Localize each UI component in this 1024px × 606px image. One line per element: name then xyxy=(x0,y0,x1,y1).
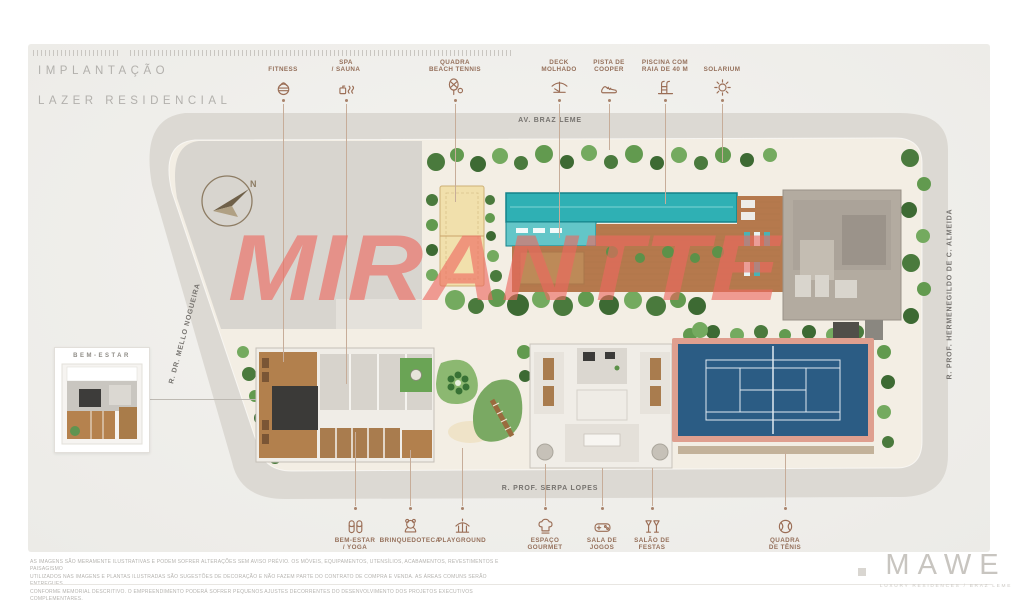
logo-tagline: LUXURY RESIDENCES / BRAZ LEME xyxy=(878,584,1014,589)
leader-dot xyxy=(601,507,604,510)
amenity-salao-de-festas: SALÃO DEFESTAS xyxy=(602,512,702,551)
leader-dot xyxy=(354,507,357,510)
leader-dot xyxy=(664,99,667,102)
leader-dot xyxy=(721,99,724,102)
leader-line xyxy=(652,468,653,506)
leader-line xyxy=(355,432,356,506)
leader-dot xyxy=(282,99,285,102)
inset-title: BEM-ESTAR xyxy=(55,353,149,359)
leader-dot xyxy=(784,507,787,510)
developer-logo: MAWE LUXURY RESIDENCES / BRAZ LEME xyxy=(878,549,1014,589)
leader-line xyxy=(609,104,610,150)
amenity-label: SOLARIUM xyxy=(672,66,772,73)
leader-line xyxy=(455,104,456,202)
watermark: MIRANTTE xyxy=(228,216,781,320)
leader-line xyxy=(785,452,786,506)
amenity-quadra-beach-tennis: QUADRABEACH TENNIS xyxy=(405,54,505,98)
sun-icon xyxy=(672,76,772,98)
tennis-ball-icon xyxy=(735,515,835,537)
site-plan-page: IMPLANTAÇÃO LAZER RESIDENCIAL N xyxy=(0,0,1024,606)
disclaimer-line-1: AS IMAGENS SÃO MERAMENTE ILUSTRATIVAS E … xyxy=(30,559,510,574)
leader-dot xyxy=(558,99,561,102)
inset-bem-estar: BEM-ESTAR xyxy=(54,347,150,453)
gravel-strip xyxy=(678,446,874,454)
leader-dot xyxy=(544,507,547,510)
racket-icon xyxy=(405,76,505,98)
leader-line xyxy=(410,450,411,506)
amenity-label: SPA/ SAUNA xyxy=(296,59,396,73)
sauna-icon xyxy=(296,76,396,98)
logo-name: MAWE xyxy=(878,549,1014,582)
wellness-building xyxy=(256,348,434,462)
disclaimer-line-3: CONFORME MEMORIAL DESCRITIVO. O EMPREEND… xyxy=(30,589,510,604)
leader-dot xyxy=(454,99,457,102)
sauna-room xyxy=(272,386,318,430)
amenity-quadra-de-tenis: QUADRADE TÊNIS xyxy=(735,512,835,551)
leader-line xyxy=(665,104,666,204)
amenity-label: QUADRADE TÊNIS xyxy=(735,537,835,551)
toast-glasses-icon xyxy=(602,515,702,537)
amenity-spa-sauna: SPA/ SAUNA xyxy=(296,54,396,98)
street-label-hermenegildo: R. PROF. HERMENEGILDO DE C. ALMEIDA xyxy=(947,220,954,380)
footer-divider xyxy=(30,584,992,585)
inset-floorplan xyxy=(61,363,143,445)
inset-connector-line xyxy=(148,399,256,400)
street-label-serpa-lopes: R. PROF. SERPA LOPES xyxy=(460,485,640,492)
amenity-label: SALÃO DEFESTAS xyxy=(602,537,702,551)
svg-text:N: N xyxy=(250,179,257,189)
tennis-court xyxy=(672,338,874,454)
leader-dot xyxy=(461,507,464,510)
disclaimer-line-2: UTILIZADOS NAS IMAGENS E PLANTAS ILUSTRA… xyxy=(30,574,510,589)
leader-dot xyxy=(608,99,611,102)
logo-square xyxy=(858,568,866,576)
amenity-solarium: SOLARIUM xyxy=(672,54,772,98)
leader-line xyxy=(602,468,603,506)
leader-line xyxy=(545,464,546,506)
leader-line xyxy=(722,104,723,162)
leader-line xyxy=(462,448,463,506)
street-label-av-braz-leme: AV. BRAZ LEME xyxy=(470,117,630,124)
gourmet-building xyxy=(530,344,672,468)
amenity-label: QUADRABEACH TENNIS xyxy=(405,59,505,73)
disclaimer: AS IMAGENS SÃO MERAMENTE ILUSTRATIVAS E … xyxy=(30,559,510,603)
leader-dot xyxy=(409,507,412,510)
leader-dot xyxy=(651,507,654,510)
leader-dot xyxy=(345,99,348,102)
